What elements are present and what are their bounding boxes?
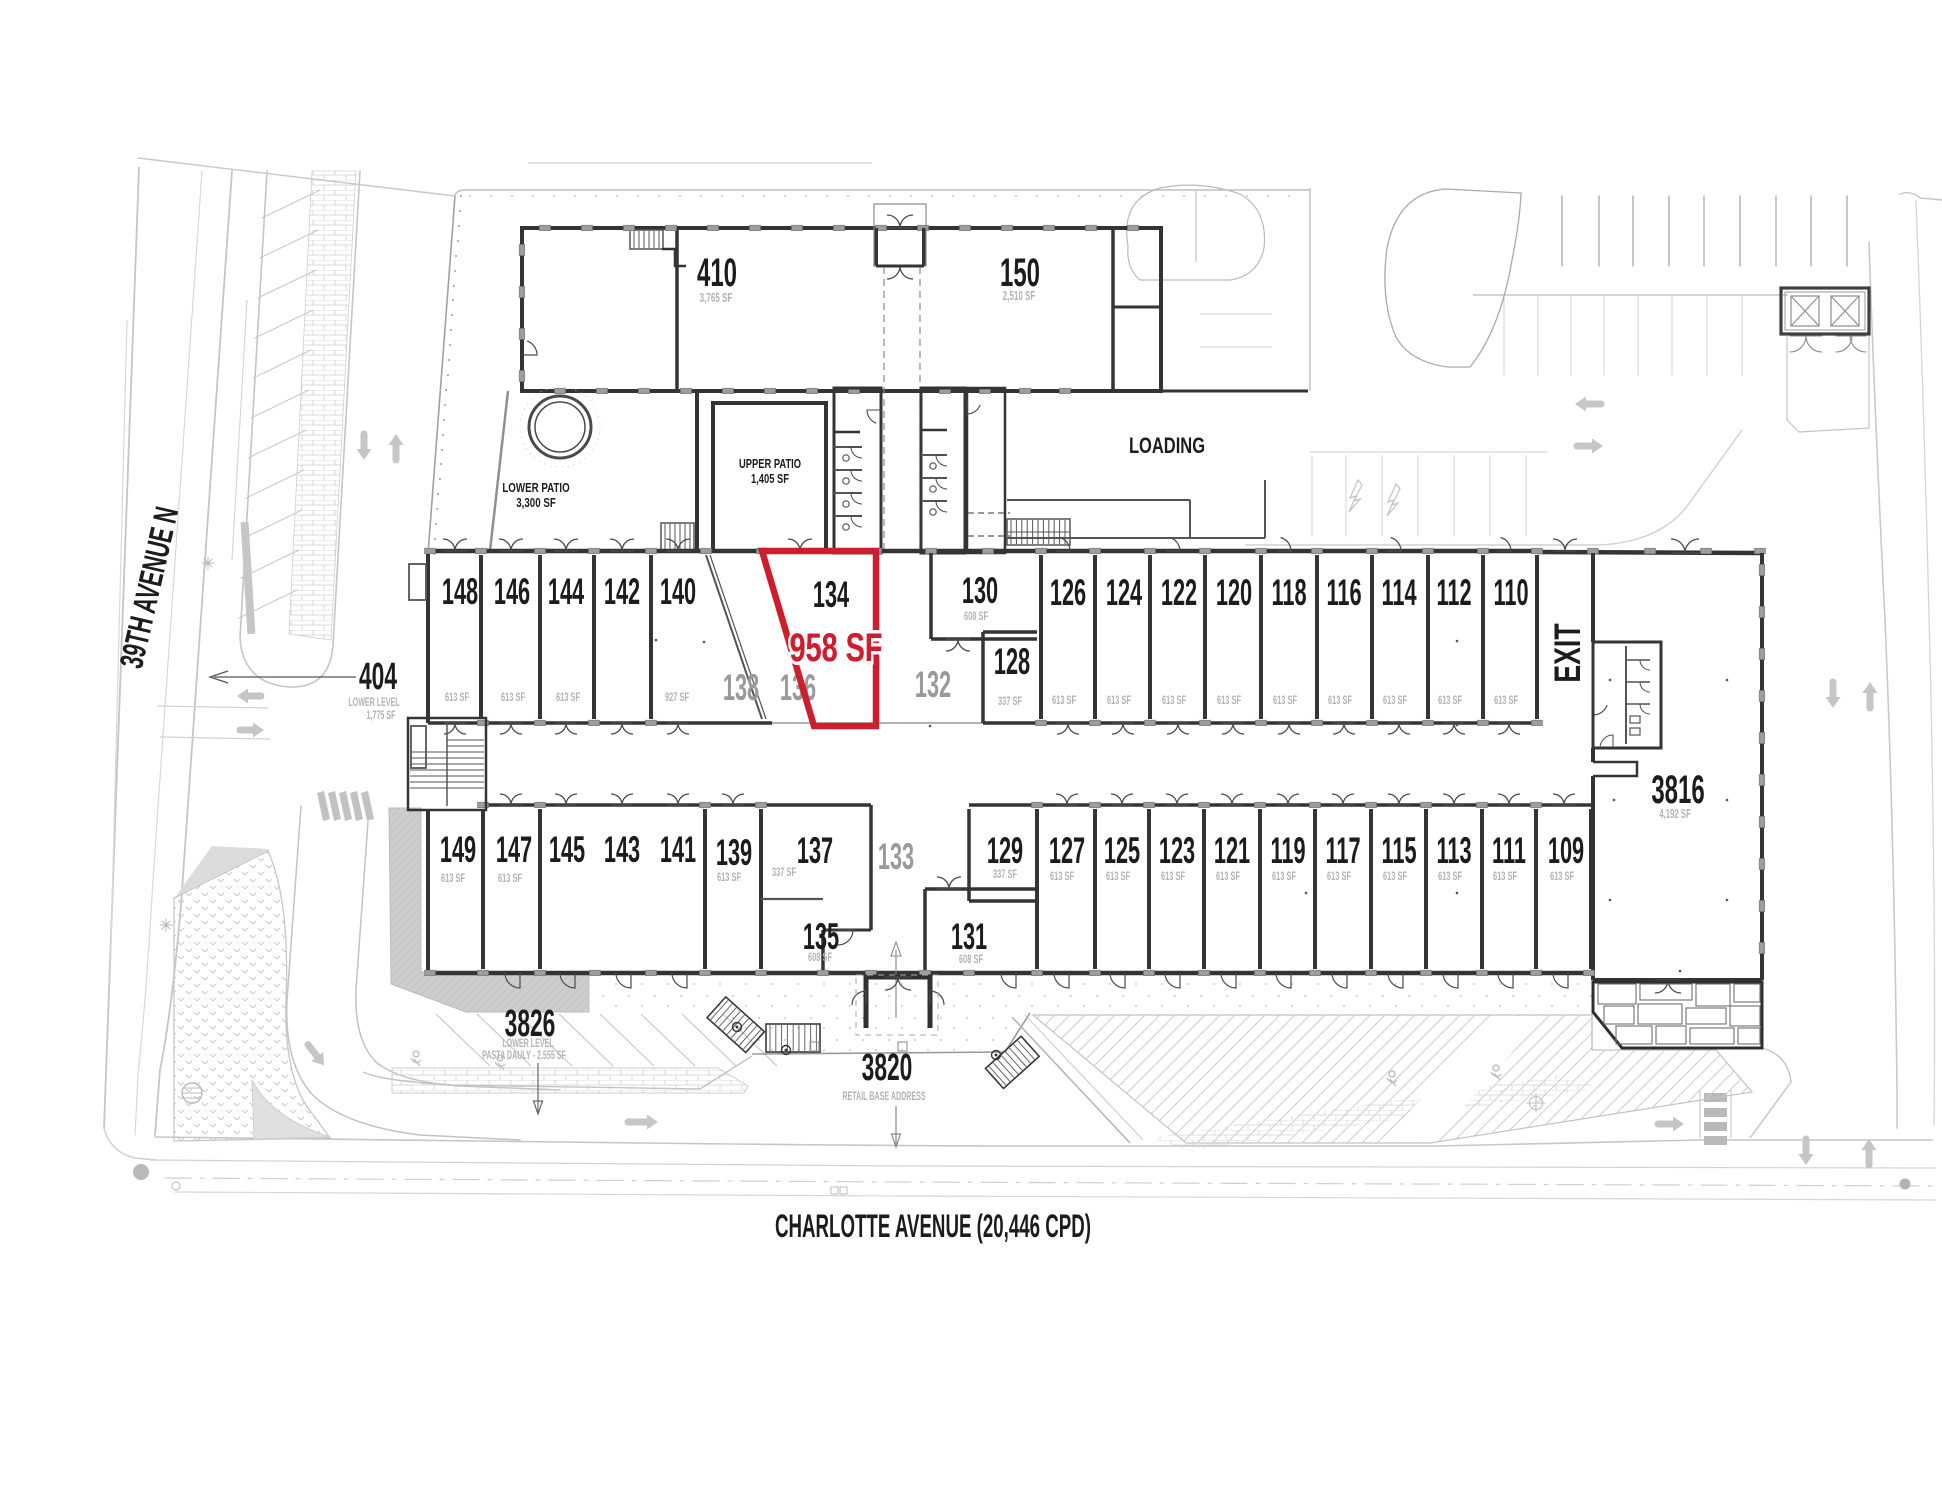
svg-text:613 SF: 613 SF	[556, 691, 580, 704]
svg-text:613 SF: 613 SF	[717, 871, 741, 884]
svg-text:RETAIL BASE ADDRESS: RETAIL BASE ADDRESS	[842, 1090, 925, 1103]
svg-text:613 SF: 613 SF	[1106, 870, 1130, 883]
svg-text:613 SF: 613 SF	[1272, 870, 1296, 883]
svg-text:613 SF: 613 SF	[1107, 694, 1131, 707]
svg-text:613 SF: 613 SF	[501, 691, 525, 704]
svg-text:127: 127	[1049, 830, 1085, 872]
svg-text:123: 123	[1159, 830, 1195, 872]
svg-text:613 SF: 613 SF	[445, 691, 469, 704]
svg-text:3,765 SF: 3,765 SF	[700, 291, 733, 305]
svg-text:110: 110	[1493, 572, 1528, 614]
svg-text:927 SF: 927 SF	[665, 691, 689, 704]
svg-text:140: 140	[660, 571, 696, 613]
svg-text:LOWER PATIO: LOWER PATIO	[502, 482, 569, 496]
svg-text:410: 410	[697, 250, 737, 295]
svg-text:130: 130	[962, 570, 998, 612]
svg-text:134: 134	[813, 574, 849, 616]
svg-text:613 SF: 613 SF	[1383, 694, 1407, 707]
svg-text:613 SF: 613 SF	[1052, 694, 1076, 707]
svg-text:113: 113	[1436, 830, 1471, 872]
svg-text:150: 150	[1000, 250, 1040, 295]
svg-text:613 SF: 613 SF	[1438, 694, 1462, 707]
svg-text:147: 147	[496, 829, 532, 871]
svg-text:142: 142	[604, 571, 640, 613]
svg-text:131: 131	[951, 916, 987, 958]
svg-text:3816: 3816	[1651, 767, 1704, 812]
svg-text:146: 146	[494, 571, 530, 613]
svg-text:116: 116	[1326, 572, 1361, 614]
svg-text:119: 119	[1270, 830, 1305, 872]
svg-text:CHARLOTTE AVENUE (20,446 CPD): CHARLOTTE AVENUE (20,446 CPD)	[775, 1208, 1091, 1245]
svg-text:2,510 SF: 2,510 SF	[1003, 289, 1036, 303]
svg-text:613 SF: 613 SF	[1438, 870, 1462, 883]
svg-text:111: 111	[1492, 830, 1526, 872]
svg-text:138: 138	[723, 667, 759, 709]
svg-text:PASTA DAULY - 2,555 SF: PASTA DAULY - 2,555 SF	[482, 1049, 566, 1062]
svg-text:613 SF: 613 SF	[441, 872, 465, 885]
svg-text:129: 129	[987, 830, 1023, 872]
svg-text:122: 122	[1161, 572, 1197, 614]
svg-text:125: 125	[1104, 830, 1140, 872]
svg-text:120: 120	[1216, 572, 1252, 614]
svg-text:337 SF: 337 SF	[998, 695, 1022, 708]
svg-text:613 SF: 613 SF	[1383, 870, 1407, 883]
svg-text:141: 141	[660, 829, 696, 871]
svg-text:UPPER PATIO: UPPER PATIO	[739, 458, 801, 472]
svg-text:608 SF: 608 SF	[959, 953, 983, 966]
svg-text:1,405 SF: 1,405 SF	[751, 473, 789, 487]
svg-text:121: 121	[1214, 830, 1250, 872]
svg-text:613 SF: 613 SF	[1493, 870, 1517, 883]
svg-text:126: 126	[1050, 572, 1086, 614]
svg-text:118: 118	[1271, 572, 1306, 614]
svg-text:144: 144	[548, 571, 584, 613]
svg-text:132: 132	[915, 664, 951, 706]
svg-text:3,300 SF: 3,300 SF	[516, 497, 556, 511]
svg-text:1,775 SF: 1,775 SF	[367, 709, 396, 722]
svg-text:109: 109	[1548, 830, 1584, 872]
svg-text:139: 139	[716, 832, 752, 874]
svg-text:117: 117	[1325, 830, 1360, 872]
svg-text:112: 112	[1436, 572, 1471, 614]
svg-text:958 SF: 958 SF	[790, 625, 883, 670]
svg-text:613 SF: 613 SF	[1161, 870, 1185, 883]
svg-text:133: 133	[878, 836, 914, 878]
svg-text:145: 145	[549, 829, 585, 871]
svg-text:149: 149	[440, 829, 476, 871]
svg-text:EXIT: EXIT	[1547, 623, 1588, 682]
svg-text:613 SF: 613 SF	[1162, 694, 1186, 707]
svg-text:613 SF: 613 SF	[498, 872, 522, 885]
svg-text:115: 115	[1381, 830, 1416, 872]
svg-text:613 SF: 613 SF	[1216, 870, 1240, 883]
svg-text:124: 124	[1106, 572, 1142, 614]
svg-text:337 SF: 337 SF	[993, 868, 1017, 881]
svg-text:613 SF: 613 SF	[1217, 694, 1241, 707]
svg-text:608 SF: 608 SF	[964, 610, 988, 623]
svg-text:137: 137	[797, 830, 833, 872]
svg-text:608 SF: 608 SF	[808, 951, 832, 964]
svg-text:3820: 3820	[862, 1046, 913, 1088]
svg-text:143: 143	[604, 829, 640, 871]
svg-text:128: 128	[994, 641, 1030, 683]
svg-text:613 SF: 613 SF	[1328, 694, 1352, 707]
svg-text:613 SF: 613 SF	[1273, 694, 1297, 707]
svg-text:337 SF: 337 SF	[772, 866, 796, 879]
svg-text:148: 148	[442, 571, 478, 613]
svg-text:613 SF: 613 SF	[1550, 870, 1574, 883]
svg-text:LOADING: LOADING	[1129, 434, 1205, 459]
svg-text:LOWER LEVEL: LOWER LEVEL	[348, 696, 400, 709]
svg-text:613 SF: 613 SF	[1327, 870, 1351, 883]
svg-text:613 SF: 613 SF	[1494, 694, 1518, 707]
svg-text:613 SF: 613 SF	[1050, 870, 1074, 883]
svg-text:114: 114	[1381, 572, 1416, 614]
svg-text:404: 404	[359, 655, 397, 697]
svg-text:4,192 SF: 4,192 SF	[1659, 808, 1690, 821]
